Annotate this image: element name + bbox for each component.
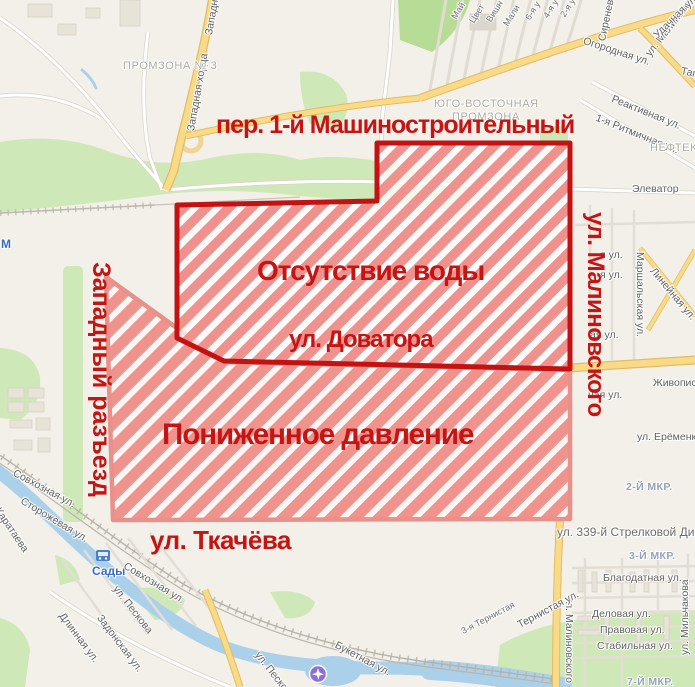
no-water-zone-shape (177, 143, 570, 369)
water-outage-map[interactable]: Западная хордаЗападная хордаПРОМЗОНА № 3… (0, 0, 695, 687)
outage-zones-overlay (0, 0, 695, 687)
zones-group (106, 143, 570, 520)
